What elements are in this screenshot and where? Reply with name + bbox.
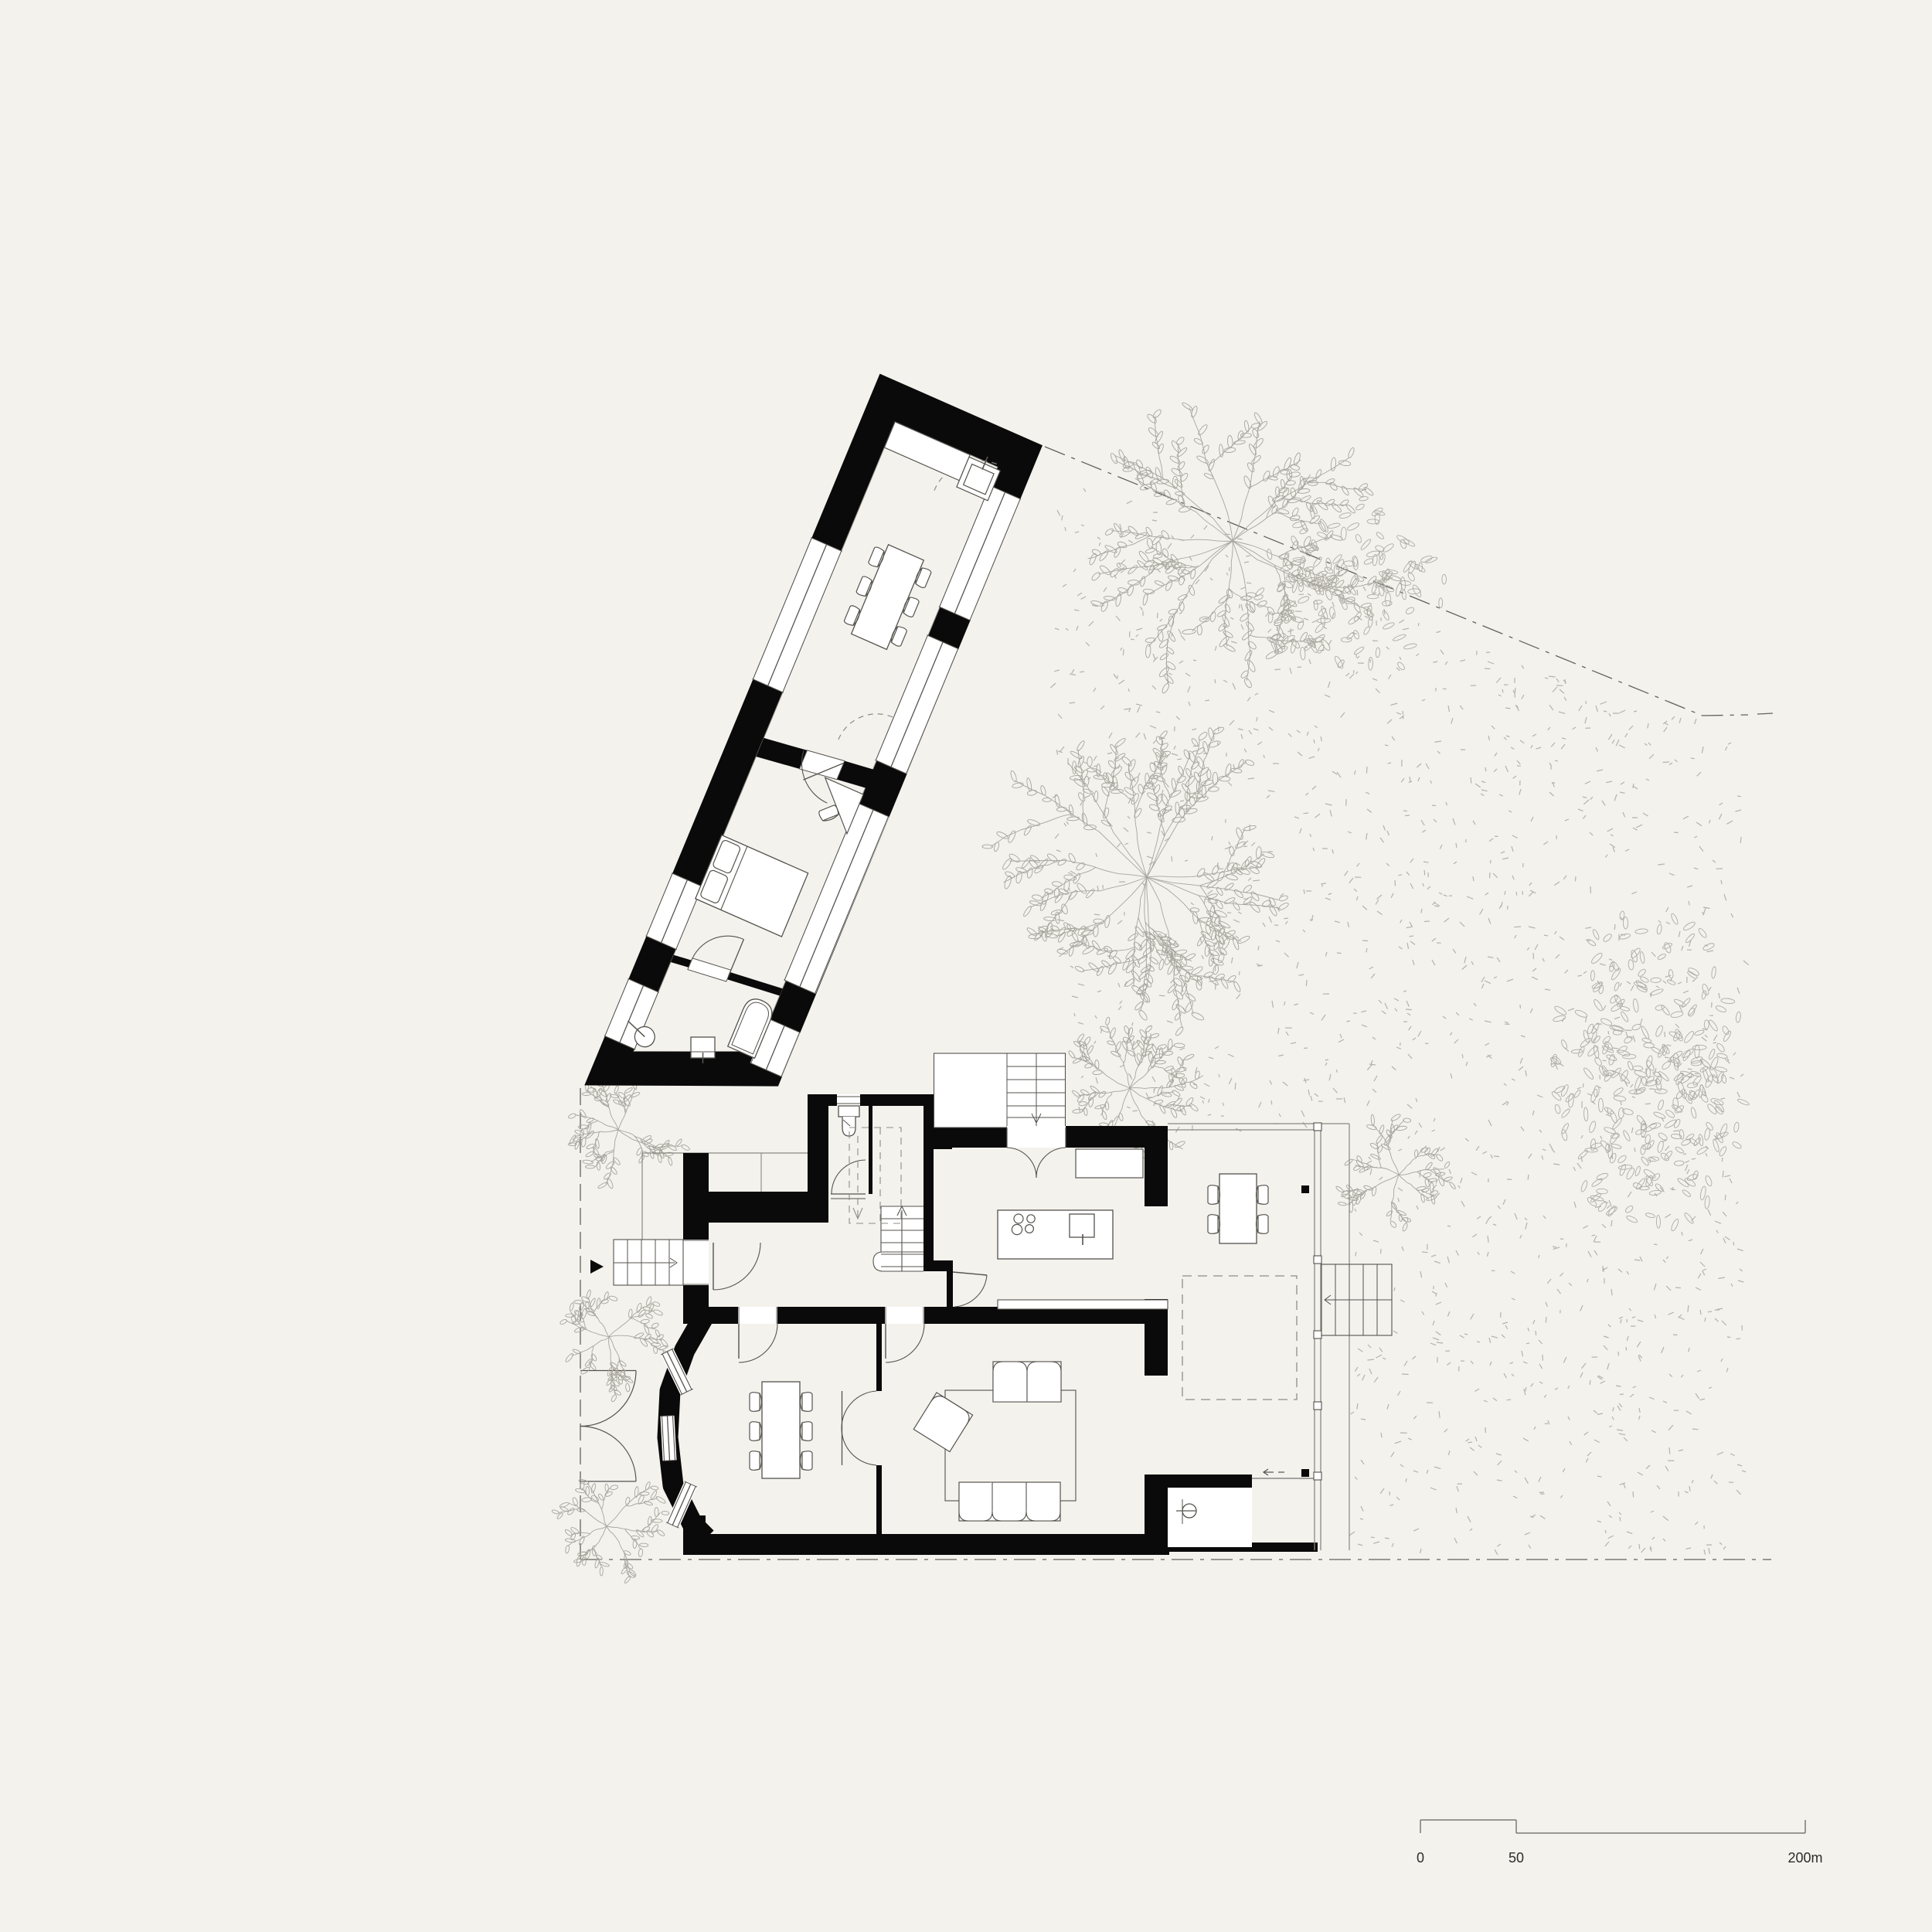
svg-text:0: 0: [1417, 1850, 1424, 1866]
svg-text:200m: 200m: [1787, 1850, 1822, 1866]
svg-text:50: 50: [1509, 1850, 1524, 1866]
